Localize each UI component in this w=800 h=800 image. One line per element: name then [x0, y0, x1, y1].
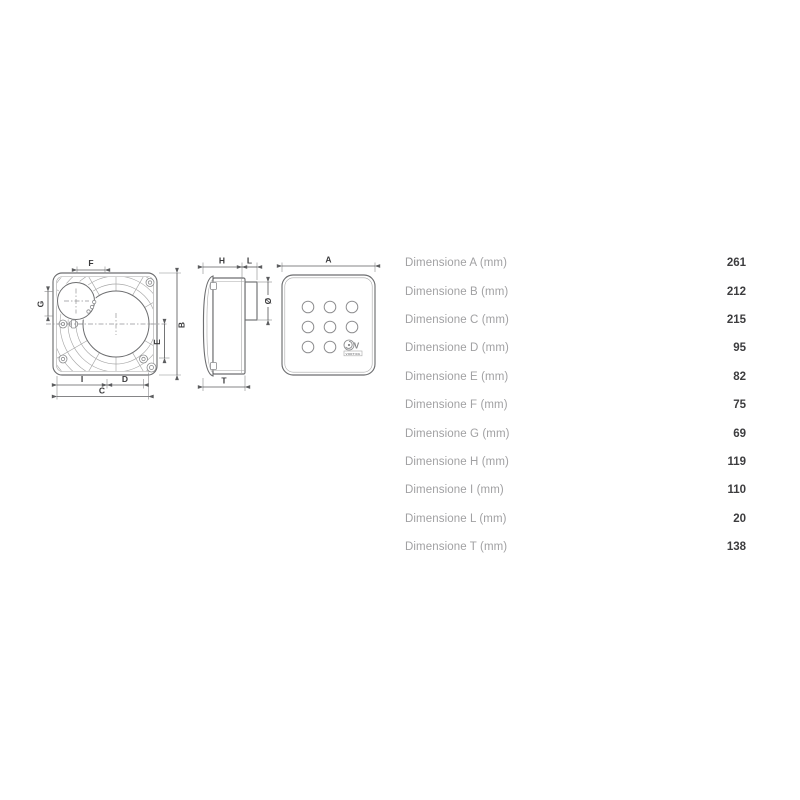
row-value: 82	[733, 371, 746, 383]
row-label: Dimensione G (mm)	[405, 428, 510, 440]
row-label: Dimensione T (mm)	[405, 541, 507, 553]
row-label: Dimensione F (mm)	[405, 399, 508, 411]
row-value: 75	[733, 399, 746, 411]
panel-view-drawing: A V VORTICE	[275, 252, 390, 402]
dim-label-B: B	[177, 322, 187, 328]
dim-label-F: F	[88, 258, 93, 268]
dimension-F: F	[77, 258, 105, 274]
dim-label-T: T	[221, 376, 227, 386]
table-row: Dimensione A (mm) 261	[405, 249, 746, 277]
table-row: Dimensione I (mm) 110	[405, 476, 746, 504]
duct-spigot	[245, 282, 257, 320]
dimension-L: L	[242, 256, 257, 281]
row-value: 119	[727, 456, 746, 468]
table-row: Dimensione F (mm) 75	[405, 391, 746, 419]
dimension-I: I	[57, 374, 107, 385]
row-label: Dimensione D (mm)	[405, 342, 509, 354]
dim-label-I: I	[81, 374, 83, 384]
dim-label-H: H	[219, 256, 225, 266]
dim-label-E: E	[152, 339, 162, 345]
row-value: 95	[733, 342, 746, 354]
row-value: 212	[727, 286, 746, 298]
dim-label-G: G	[36, 300, 46, 307]
side-view-drawing: H L Ø T	[195, 252, 280, 402]
dim-label-D: D	[122, 374, 128, 384]
cover-plate	[282, 275, 375, 375]
product-dimensions-page: F G B E I	[0, 0, 800, 800]
row-value: 215	[727, 314, 746, 326]
dimension-C: C	[57, 386, 149, 397]
dimensions-table: Dimensione A (mm) 261 Dimensione B (mm) …	[405, 249, 746, 561]
dimension-T: T	[203, 376, 245, 392]
vortice-initial: V	[354, 342, 360, 351]
dim-label-C: C	[99, 386, 105, 396]
dim-label-A: A	[325, 255, 331, 265]
table-row: Dimensione H (mm) 119	[405, 448, 746, 476]
dimension-A: A	[282, 255, 375, 273]
dimension-H: H	[203, 256, 242, 280]
table-row: Dimensione L (mm) 20	[405, 505, 746, 533]
row-value: 110	[727, 484, 746, 496]
table-row: Dimensione D (mm) 95	[405, 334, 746, 362]
dim-label-diameter: Ø	[263, 297, 273, 304]
row-value: 138	[727, 541, 746, 553]
side-body	[213, 278, 245, 374]
table-row: Dimensione B (mm) 212	[405, 277, 746, 305]
row-label: Dimensione C (mm)	[405, 314, 509, 326]
row-label: Dimensione H (mm)	[405, 456, 509, 468]
table-row: Dimensione E (mm) 82	[405, 363, 746, 391]
row-label: Dimensione I (mm)	[405, 484, 504, 496]
front-view-drawing: F G B E I	[40, 255, 190, 405]
row-label: Dimensione L (mm)	[405, 513, 507, 525]
table-row: Dimensione C (mm) 215	[405, 306, 746, 334]
dimension-G: G	[36, 292, 54, 317]
dim-label-L: L	[247, 256, 252, 266]
vortice-wordmark: VORTICE	[345, 352, 360, 356]
table-row: Dimensione T (mm) 138	[405, 533, 746, 561]
row-label: Dimensione B (mm)	[405, 286, 508, 298]
table-row: Dimensione G (mm) 69	[405, 419, 746, 447]
cover-latch-top	[211, 283, 217, 290]
row-value: 20	[733, 513, 746, 525]
cover-latch-bottom	[211, 363, 217, 370]
row-label: Dimensione E (mm)	[405, 371, 508, 383]
row-value: 261	[727, 257, 746, 269]
row-value: 69	[733, 428, 746, 440]
row-label: Dimensione A (mm)	[405, 257, 507, 269]
dimension-D: D	[107, 374, 144, 385]
dimension-diameter: Ø	[258, 282, 273, 320]
